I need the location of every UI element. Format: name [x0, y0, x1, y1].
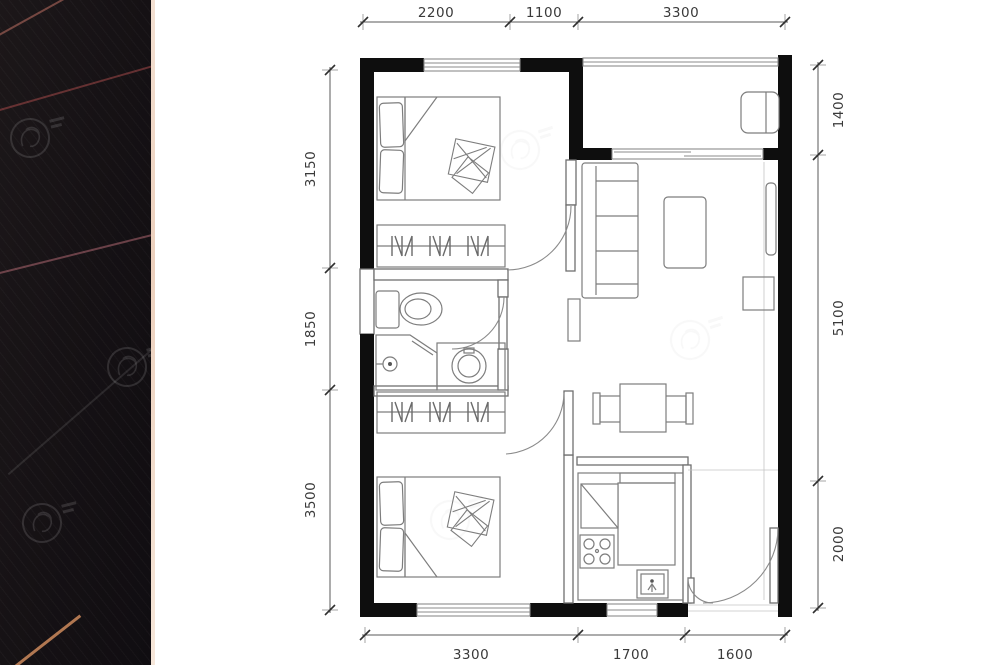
toilet-icon: [376, 291, 442, 328]
dimension-label: 1700: [613, 647, 649, 663]
dimension-right: 1400 5100 2000: [810, 60, 847, 613]
washer-icon: [741, 92, 779, 133]
tv-console-icon: [743, 277, 774, 310]
stove-icon: [580, 535, 614, 568]
dimension-label: 1100: [526, 5, 562, 21]
dimension-bottom: 3300 1700 1600: [360, 627, 790, 663]
bedroom-top: [377, 97, 505, 267]
door-bathroom: [452, 297, 507, 349]
dimension-label: 5100: [831, 300, 847, 336]
door-bedroom-bottom: [506, 391, 573, 455]
window: [424, 59, 520, 71]
double-bed-icon: [377, 97, 500, 200]
coffee-table-icon: [664, 197, 706, 268]
sofa-icon: [582, 163, 638, 298]
dining-area: [593, 384, 693, 432]
kitchen: [578, 473, 683, 600]
dimension-label: 2000: [831, 526, 847, 562]
dining-chair-icon: [665, 393, 693, 424]
dining-chair-icon: [593, 393, 621, 424]
door-bedroom-top: [507, 205, 575, 271]
bathroom-sink-icon: [437, 343, 505, 390]
dimension-label: 3500: [303, 482, 319, 518]
bedroom-bottom: [377, 392, 505, 577]
outer-walls: [360, 55, 792, 617]
balcony: [741, 92, 779, 133]
double-bed-icon: [377, 477, 500, 577]
window: [417, 604, 530, 616]
shower-icon: [376, 335, 437, 390]
dimension-label: 3300: [663, 5, 699, 21]
dimension-label: 1850: [303, 311, 319, 347]
dimension-label: 1600: [717, 647, 753, 663]
wardrobe-icon: [377, 225, 505, 267]
dimension-top: 2200 1100 3300: [358, 5, 790, 30]
watermark-icons: [0, 0, 151, 665]
tv-icon: [766, 183, 776, 255]
dimension-label: 3150: [303, 151, 319, 187]
living-room: [568, 163, 776, 341]
dining-table-icon: [620, 384, 666, 432]
screenshot-root: 2200 1100 3300 3300 1700 1600 3150 1850 …: [0, 0, 1000, 665]
balcony-railing: [583, 58, 778, 66]
window: [607, 604, 657, 616]
interior-walls: [374, 160, 778, 603]
fridge-icon: [581, 484, 618, 528]
entry-door: [688, 528, 778, 611]
listing-photo-strip[interactable]: [0, 0, 151, 665]
bathroom: [376, 291, 505, 390]
duct-shaft: [360, 269, 374, 334]
dimension-label: 1400: [831, 92, 847, 128]
dimension-label: 2200: [418, 5, 454, 21]
kitchen-sink-icon: [637, 570, 668, 598]
wardrobe-icon: [377, 392, 505, 433]
dimension-label: 3300: [453, 647, 489, 663]
sliding-door: [612, 149, 763, 159]
side-table-icon: [568, 299, 580, 341]
dimension-left: 3150 1850 3500: [303, 65, 338, 615]
